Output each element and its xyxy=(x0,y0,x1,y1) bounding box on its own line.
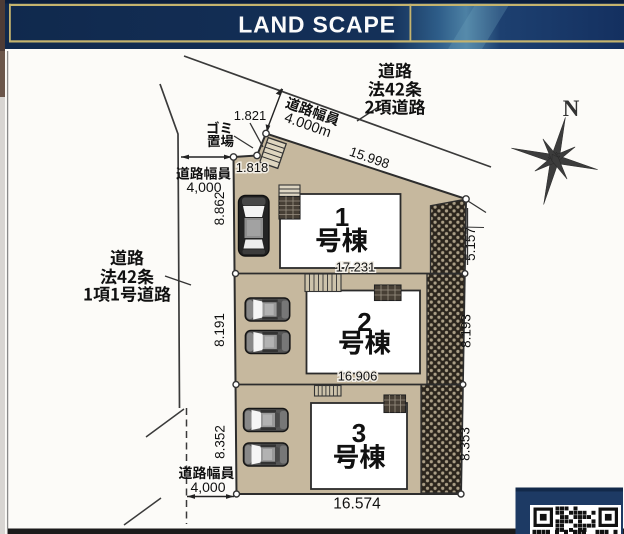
svg-text:LAND SCAPE: LAND SCAPE xyxy=(238,12,396,38)
svg-text:16.574: 16.574 xyxy=(333,496,381,513)
svg-text:4,000: 4,000 xyxy=(190,479,225,495)
svg-text:8.191: 8.191 xyxy=(212,313,227,347)
svg-text:8.862: 8.862 xyxy=(212,192,227,226)
svg-text:1.821: 1.821 xyxy=(234,108,267,123)
svg-text:8.193: 8.193 xyxy=(459,314,474,348)
svg-text:8.353: 8.353 xyxy=(458,427,473,461)
svg-text:3: 3 xyxy=(352,418,366,448)
svg-text:16.906: 16.906 xyxy=(338,369,378,384)
svg-text:4,000: 4,000 xyxy=(186,179,221,195)
svg-text:1.818: 1.818 xyxy=(236,160,269,175)
svg-text:8.352: 8.352 xyxy=(213,425,228,459)
svg-text:5.157: 5.157 xyxy=(463,227,478,261)
svg-text:N: N xyxy=(563,96,580,121)
svg-text:17.231: 17.231 xyxy=(336,260,376,275)
